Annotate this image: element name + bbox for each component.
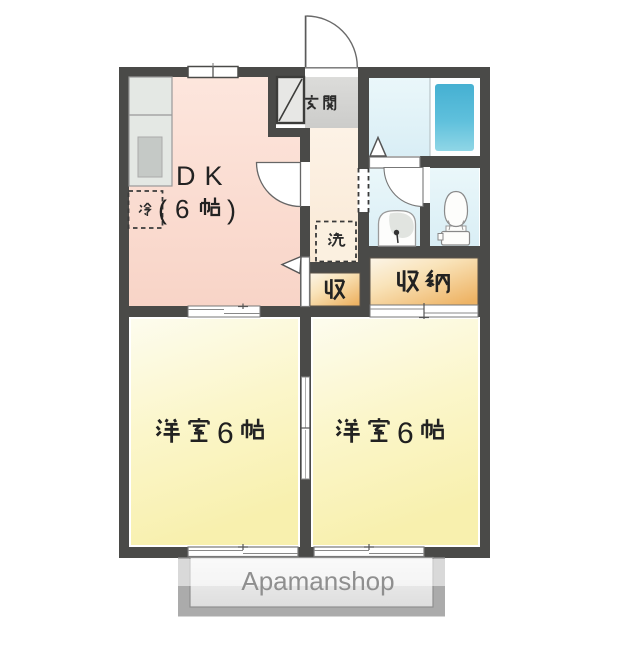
svg-text:Apamanshop: Apamanshop [241,566,394,596]
svg-text:(: ( [158,195,167,225]
svg-text:6: 6 [175,194,189,224]
svg-text:6: 6 [397,417,414,450]
svg-text:DK: DK [176,161,232,191]
svg-text:6: 6 [217,417,234,450]
svg-text:): ) [227,195,236,225]
